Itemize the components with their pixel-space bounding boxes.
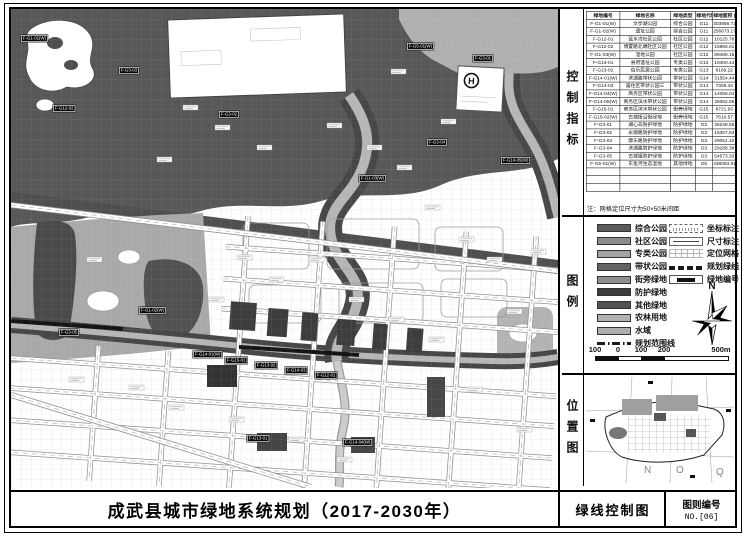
cell-type: 综合公园 xyxy=(670,28,695,36)
planning-map-drawing: H xyxy=(11,9,558,488)
legend-swatch xyxy=(597,314,631,322)
cell-code: F-G15-02(W) xyxy=(586,113,620,121)
compass-icon: N xyxy=(689,279,735,347)
grid-letter: O xyxy=(676,465,684,476)
scale-end-label: 500m xyxy=(711,345,730,354)
cell-type: 带状公园 xyxy=(670,90,695,98)
table-header-row: 绿地编号 绿地名称 绿地类型 绿地代码 绿地面积 (m²) xyxy=(586,11,736,19)
green-space-table-container[interactable]: 绿地编号 绿地名称 绿地类型 绿地代码 绿地面积 (m²) F-G1-01(W) xyxy=(586,11,736,203)
legend-item: 水域 xyxy=(597,324,675,337)
legend-swatch xyxy=(597,327,631,335)
sheet-label: 图则编号 xyxy=(682,497,720,511)
cell-name: 古城镇防护绿地 xyxy=(620,152,670,160)
legend-item: 综合公园 xyxy=(597,222,675,235)
cell-code: F-G1-02(W) xyxy=(586,28,620,36)
legend-item: 坐标标注 xyxy=(669,222,739,235)
title-bar: 成武县城市绿地系统规划（2017-2030年） 绿线控制图 图则编号 NO.[0… xyxy=(11,490,735,526)
grid-letter: N xyxy=(644,465,651,476)
legend-label: 其他绿地 xyxy=(635,300,667,311)
cell-area: 10125.78 xyxy=(712,35,736,43)
cell-area: 10400.44 xyxy=(712,59,736,67)
cell-code: F-G3-04 xyxy=(586,145,620,153)
side-panel: 控制指标 绿地编号 绿地名称 绿地类型 绿地代码 xyxy=(562,9,735,490)
section-title: 位置图 xyxy=(564,399,581,462)
cell-class: G12 xyxy=(696,51,713,59)
cell-area: 54573.33 xyxy=(712,152,736,160)
cell-class: G12 xyxy=(696,35,713,43)
green-space-label: F-G12-01 xyxy=(315,372,337,379)
col-header: 绿地名称 xyxy=(620,11,670,19)
cell-code: F-G1-01(W) xyxy=(586,20,620,28)
legend-swatch xyxy=(597,237,631,245)
legend-item: 定位网格 xyxy=(669,248,739,261)
section-label-strip: 位置图 xyxy=(562,375,584,486)
cell-name: 博置路北端社区公园 xyxy=(620,43,670,51)
cell-type: 社区公园 xyxy=(670,35,695,43)
cell-code: F-G14-04(W) xyxy=(586,90,620,98)
cell-name: 伯乐民居公园 xyxy=(620,67,670,75)
cell-type: 专类公园 xyxy=(670,67,695,75)
green-space-label: F-G14-05(W) xyxy=(501,157,530,164)
scale-bar: 100 0 100 200 500m xyxy=(593,345,733,371)
cell-code: F-G14-01(W) xyxy=(586,74,620,82)
cell-area: 31554.44 xyxy=(712,74,736,82)
cell-type: 防护绿地 xyxy=(670,145,695,153)
cell-class: G3 xyxy=(696,145,713,153)
legend-label: 尺寸标注 xyxy=(707,236,739,247)
legend-label: 专类公园 xyxy=(635,248,667,259)
cell-area: 29288.38 xyxy=(712,145,736,153)
inner-frame: H xyxy=(9,7,737,528)
legend-symbol-icon xyxy=(669,266,703,270)
cell-class: G14 xyxy=(696,82,713,90)
table-row: F-G3-01 湖心岛防护绿地 防护绿地 G3 35248.55 xyxy=(586,121,736,129)
scale-tick: 100 xyxy=(635,345,648,354)
plan-title: 成武县城市绿地系统规划（2017-2030年） xyxy=(108,497,462,522)
green-space-table: 绿地编号 绿地名称 绿地类型 绿地代码 绿地面积 (m²) F-G1-01(W) xyxy=(586,11,736,192)
table-row: F-G1-02(W) 遗址公园 综合公园 G11 256673.17 xyxy=(586,28,736,36)
legend-item: 带状公园 xyxy=(597,260,675,273)
green-space-table-body: F-G1-01(W) 文亭湖公园 综合公园 G11 303856.72 F-G1… xyxy=(586,20,736,192)
cell-code: F-G14-03 xyxy=(586,82,620,90)
legend-item: 专类公园 xyxy=(597,248,675,261)
green-space-label: F-G3-02 xyxy=(219,111,239,118)
sheet-number: NO.[06] xyxy=(685,513,719,522)
cell-area: 14056.04 xyxy=(712,90,736,98)
cell-name: 滨湖路防护绿地 xyxy=(620,145,670,153)
table-row: F-G1-01(W) 文亭湖公园 综合公园 G11 303856.72 xyxy=(586,20,736,28)
cell-class: G13 xyxy=(696,59,713,67)
col-header: 绿地类型 xyxy=(670,11,695,19)
cell-area: 438053.91 xyxy=(712,160,736,168)
map-name-cell: 绿线控制图 xyxy=(562,492,666,526)
table-row: F-G3-04 滨湖路防护绿地 防护绿地 G3 29288.38 xyxy=(586,145,736,153)
green-space-label: F-G1-01(W) xyxy=(21,35,48,42)
legend-item: 街旁绿地 xyxy=(597,273,675,286)
cell-name: 居住区带状公园三 xyxy=(620,82,670,90)
cell-class: G14 xyxy=(696,74,713,82)
cell-area: 35248.55 xyxy=(712,121,736,129)
scale-bar-graphic xyxy=(595,356,729,361)
legend-item: 规划绿线 xyxy=(669,260,739,273)
cell-name: 湖心岛防护绿地 xyxy=(620,121,670,129)
scale-tick: 100 xyxy=(589,345,602,354)
legend-label: 定位网格 xyxy=(707,248,739,259)
legend-label: 坐标标注 xyxy=(707,223,739,234)
cell-code: F-G12-01 xyxy=(586,35,620,43)
table-row: F-G12-01 蓝水湾社区公园 社区公园 G12 10125.78 xyxy=(586,35,736,43)
table-row: F-G1-03(W) 湿地公园 社区公园 G12 89488.18 xyxy=(586,51,736,59)
cell-area: 256673.17 xyxy=(712,28,736,36)
cell-code: F-G13-01 xyxy=(586,59,620,67)
col-header: 绿地面积 (m²) xyxy=(712,11,736,19)
cell-code: F-G3-02 xyxy=(586,129,620,137)
cell-code: F-G5-01(W) xyxy=(586,160,620,168)
legend-symbol-icon xyxy=(669,249,703,258)
cell-type: 带状公园 xyxy=(670,82,695,90)
cell-area: 7610.57 xyxy=(712,113,736,121)
cell-code: F-G13-02 xyxy=(586,67,620,75)
legend-item: 尺寸标注 xyxy=(669,235,739,248)
section-label-strip: 控制指标 xyxy=(562,9,584,215)
col-header: 绿地代码 xyxy=(696,11,713,19)
table-row: F-G14-03 居住区带状公园三 带状公园 G14 7359.44 xyxy=(586,82,736,90)
legend-label: 农林用地 xyxy=(635,312,667,323)
cell-code: F-G3-01 xyxy=(586,121,620,129)
cell-area: 7359.44 xyxy=(712,82,736,90)
legend-item: 其他绿地 xyxy=(597,299,675,312)
scale-tick: 200 xyxy=(658,345,671,354)
cell-area: 89488.18 xyxy=(712,51,736,59)
cell-type: 街旁绿地 xyxy=(670,113,695,121)
legend-swatch xyxy=(597,288,631,296)
section-location-map: 位置图 xyxy=(562,375,735,486)
cell-type: 综合公园 xyxy=(670,20,695,28)
cell-name: 东鱼河生态湿地 xyxy=(620,160,670,168)
cell-type: 防护绿地 xyxy=(670,121,695,129)
legend-item: 社区公园 xyxy=(597,235,675,248)
legend-symbol-list: 坐标标注 尺寸标注 定位网格 规划绿线 xyxy=(669,222,739,286)
legend-swatch xyxy=(597,301,631,309)
cell-name: 文亭湖公园 xyxy=(620,20,670,28)
location-minimap[interactable]: N O Q xyxy=(586,377,734,483)
compass-north-label: N xyxy=(708,281,715,292)
cell-class: G14 xyxy=(696,98,713,106)
cell-class: G12 xyxy=(696,43,713,51)
green-space-label: F-G1-02(W) xyxy=(139,307,166,314)
legend-label: 街旁绿地 xyxy=(635,274,667,285)
cell-area: 8721.93 xyxy=(712,106,736,114)
cell-name: 蓝水湾社区公园 xyxy=(620,35,670,43)
cell-type: 带状公园 xyxy=(670,98,695,106)
table-row: F-G15-02(W) 古城街沿街绿地 街旁绿地 G15 7610.57 xyxy=(586,113,736,121)
table-row: F-G14-04(W) 商务区带状公园 带状公园 G14 14056.04 xyxy=(586,90,736,98)
legend-area-list: 综合公园 社区公园 专类公园 带状公园 xyxy=(597,222,675,350)
table-row: F-G14-01(W) 滨湖路带状公园 带状公园 G14 31554.44 xyxy=(586,74,736,82)
green-space-label: F-G14-03 xyxy=(285,367,307,374)
table-row-empty xyxy=(586,176,736,184)
cell-type: 社区公园 xyxy=(670,43,695,51)
green-space-label: F-G3-05 xyxy=(59,329,79,336)
table-row-empty xyxy=(586,184,736,192)
table-row: F-G14-05(W) 商务区滨水带状公园 带状公园 G14 35062.66 xyxy=(586,98,736,106)
cell-area: 15966.01 xyxy=(712,43,736,51)
section-title: 图例 xyxy=(564,274,581,316)
cell-type: 带状公园 xyxy=(670,74,695,82)
cell-type: 其他绿地 xyxy=(670,160,695,168)
cell-type: 防护绿地 xyxy=(670,152,695,160)
table-row: F-G12-02 博置路北端社区公园 社区公园 G12 15966.01 xyxy=(586,43,736,51)
cell-type: 防护绿地 xyxy=(670,129,695,137)
legend-label: 水域 xyxy=(635,325,651,336)
legend-swatch xyxy=(597,250,631,258)
cell-type: 街旁绿地 xyxy=(670,106,695,114)
legend-symbol-icon xyxy=(669,237,703,246)
map-name: 绿线控制图 xyxy=(575,500,650,519)
cell-class: G3 xyxy=(696,152,713,160)
cell-area: 29051.10 xyxy=(712,137,736,145)
green-space-label: F-G13-02 xyxy=(255,362,277,369)
cell-class: G13 xyxy=(696,67,713,75)
legend-swatch xyxy=(597,276,631,284)
section-legend: 图例 综合公园 社区公园 专类公园 xyxy=(562,217,735,375)
cell-class: G3 xyxy=(696,129,713,137)
green-space-label: F-G14-04(W) xyxy=(343,439,372,446)
col-header: 绿地编号 xyxy=(586,11,620,19)
green-space-label: F-G3-03 xyxy=(119,67,139,74)
cell-class: G5 xyxy=(696,160,713,168)
table-row: F-G3-05 古城镇防护绿地 防护绿地 G3 54573.33 xyxy=(586,152,736,160)
cell-code: F-G14-05(W) xyxy=(586,98,620,106)
cell-name: 县府遗址公园 xyxy=(620,59,670,67)
cell-name: 古城街沿街绿地 xyxy=(620,113,670,121)
cell-class: G14 xyxy=(696,90,713,98)
cell-name: 商务区滨水带状公园 xyxy=(620,98,670,106)
cell-class: G15 xyxy=(696,106,713,114)
cell-type: 防护绿地 xyxy=(670,137,695,145)
cell-class: G3 xyxy=(696,121,713,129)
cell-class: G11 xyxy=(696,28,713,36)
title-cell: 成武县城市绿地系统规划（2017-2030年） xyxy=(11,492,560,526)
legend-symbol-icon xyxy=(669,224,703,233)
planning-sheet: H xyxy=(0,0,746,537)
cell-name: 商务区滨水带状公园 xyxy=(620,106,670,114)
green-space-label: F-G12-02 xyxy=(53,105,75,112)
grid-note: 注：网格定位尺寸为50×50米间距 xyxy=(587,205,735,214)
table-row: F-G3-02 永顺路防护绿地 防护绿地 G3 15367.53 xyxy=(586,129,736,137)
legend-swatch xyxy=(597,263,631,271)
sheet-number-cell: 图则编号 NO.[06] xyxy=(668,492,735,526)
table-row-empty xyxy=(586,168,736,176)
cell-class: G3 xyxy=(696,137,713,145)
table-row: F-G5-01(W) 东鱼河生态湿地 其他绿地 G5 438053.91 xyxy=(586,160,736,168)
cell-class: G15 xyxy=(696,113,713,121)
cell-class: G11 xyxy=(696,20,713,28)
cell-name: 滨湖路带状公园 xyxy=(620,74,670,82)
table-row: F-G13-02 伯乐民居公园 专类公园 G13 8169.22 xyxy=(586,67,736,75)
cell-type: 社区公园 xyxy=(670,51,695,59)
table-row: F-G13-01 县府遗址公园 专类公园 G13 10400.44 xyxy=(586,59,736,67)
green-space-label: F-G3-01 xyxy=(473,55,493,62)
legend-label: 规划绿线 xyxy=(707,261,739,272)
legend-label: 综合公园 xyxy=(635,223,667,234)
green-space-label: F-G3-04 xyxy=(427,139,447,146)
cell-area: 15367.53 xyxy=(712,129,736,137)
cell-name: 遗址公园 xyxy=(620,28,670,36)
scale-tick: 0 xyxy=(616,345,620,354)
cell-name: 康乐路防护绿地 xyxy=(620,137,670,145)
table-row: F-G15-01 商务区滨水带状公园 街旁绿地 G15 8721.93 xyxy=(586,106,736,114)
cell-name: 商务区带状公园 xyxy=(620,90,670,98)
cell-area: 35062.66 xyxy=(712,98,736,106)
cell-name: 永顺路防护绿地 xyxy=(620,129,670,137)
grid-letter: Q xyxy=(716,467,724,478)
map-canvas[interactable]: H xyxy=(11,9,560,490)
cell-code: F-G3-03 xyxy=(586,137,620,145)
green-space-label: F-G14-01(W) xyxy=(193,351,222,358)
section-label-strip: 图例 xyxy=(562,217,584,373)
table-row: F-G3-03 康乐路防护绿地 防护绿地 G3 29051.10 xyxy=(586,137,736,145)
legend-label: 带状公园 xyxy=(635,261,667,272)
cell-type: 专类公园 xyxy=(670,59,695,67)
compass-rose: N xyxy=(689,279,735,352)
green-space-label: F-G15-01 xyxy=(225,357,247,364)
legend-item: 农林用地 xyxy=(597,312,675,325)
green-space-label: F-G5-01(W) xyxy=(407,43,434,50)
cell-area: 303856.72 xyxy=(712,20,736,28)
cell-name: 湿地公园 xyxy=(620,51,670,59)
cell-code: F-G3-05 xyxy=(586,152,620,160)
section-control-indicators: 控制指标 绿地编号 绿地名称 绿地类型 绿地代码 xyxy=(562,9,735,217)
green-space-label: F-G1-03(W) xyxy=(359,175,386,182)
section-title: 控制指标 xyxy=(564,70,581,154)
legend-item: 防护绿地 xyxy=(597,286,675,299)
legend-label: 防护绿地 xyxy=(635,287,667,298)
cell-code: F-G15-01 xyxy=(586,106,620,114)
legend-label: 社区公园 xyxy=(635,236,667,247)
legend-swatch xyxy=(597,224,631,232)
cell-code: F-G1-03(W) xyxy=(586,51,620,59)
cell-code: F-G12-02 xyxy=(586,43,620,51)
cell-area: 8169.22 xyxy=(712,67,736,75)
green-space-label: F-G13-01 xyxy=(247,435,269,442)
